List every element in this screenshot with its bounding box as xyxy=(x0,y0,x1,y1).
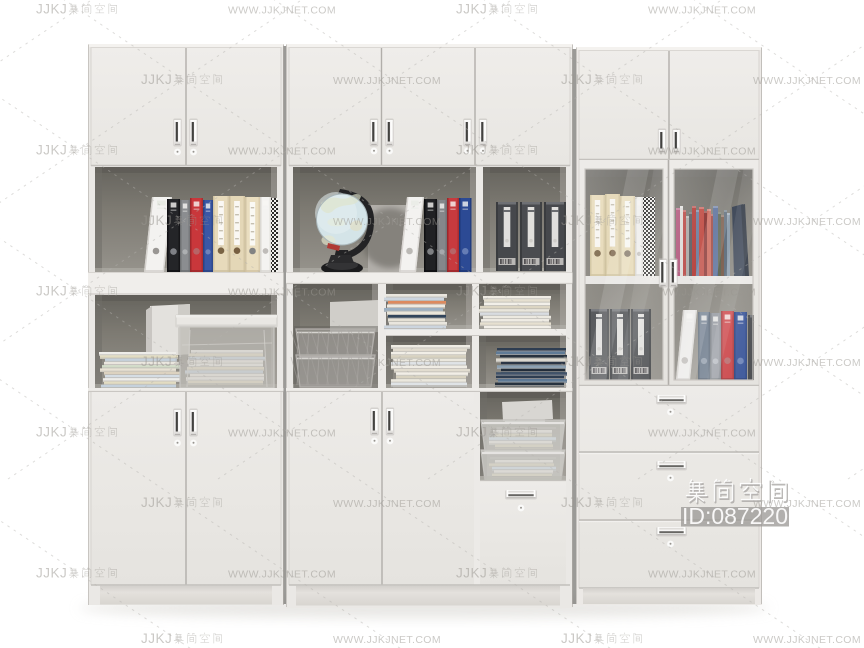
svg-text:WWW.JJKJNET.COM: WWW.JJKJNET.COM xyxy=(228,287,336,299)
svg-text:WWW.JJKJNET.COM: WWW.JJKJNET.COM xyxy=(648,287,756,299)
svg-text:WWW.JJKJNET.COM: WWW.JJKJNET.COM xyxy=(333,216,441,228)
svg-text:WWW.JJKJNET.COM: WWW.JJKJNET.COM xyxy=(753,634,861,646)
svg-text:WWW.JJKJNET.COM: WWW.JJKJNET.COM xyxy=(333,75,441,87)
svg-text:WWW.JJKJNET.COM: WWW.JJKJNET.COM xyxy=(648,146,756,158)
svg-text:WWW.JJKJNET.COM: WWW.JJKJNET.COM xyxy=(333,357,441,369)
svg-text:WWW.JJKJNET.COM: WWW.JJKJNET.COM xyxy=(228,5,336,17)
svg-text:WWW.JJKJNET.COM: WWW.JJKJNET.COM xyxy=(228,146,336,158)
svg-text:WWW.JJKJNET.COM: WWW.JJKJNET.COM xyxy=(648,5,756,17)
svg-text:WWW.JJKJNET.COM: WWW.JJKJNET.COM xyxy=(228,569,336,581)
svg-text:WWW.JJKJNET.COM: WWW.JJKJNET.COM xyxy=(333,634,441,646)
svg-text:WWW.JJKJNET.COM: WWW.JJKJNET.COM xyxy=(648,569,756,581)
svg-text:WWW.JJKJNET.COM: WWW.JJKJNET.COM xyxy=(228,428,336,440)
svg-text:ID:087220: ID:087220 xyxy=(682,503,788,529)
svg-text:WWW.JJKJNET.COM: WWW.JJKJNET.COM xyxy=(648,428,756,440)
svg-text:WWW.JJKJNET.COM: WWW.JJKJNET.COM xyxy=(753,357,861,369)
svg-text:WWW.JJKJNET.COM: WWW.JJKJNET.COM xyxy=(333,498,441,510)
svg-text:WWW.JJKJNET.COM: WWW.JJKJNET.COM xyxy=(753,216,861,228)
svg-text:WWW.JJKJNET.COM: WWW.JJKJNET.COM xyxy=(753,75,861,87)
